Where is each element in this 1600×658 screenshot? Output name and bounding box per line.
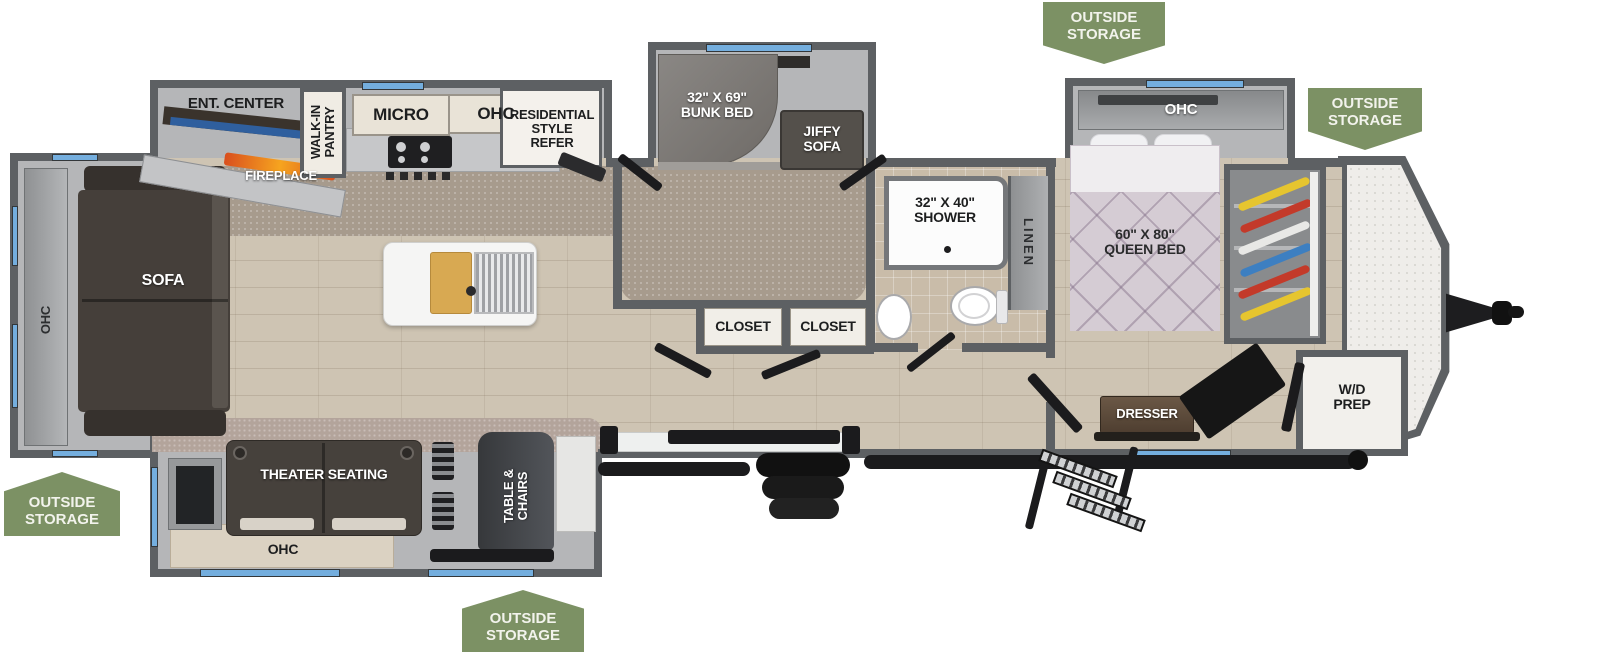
wall	[613, 300, 705, 309]
island-sink	[474, 252, 534, 314]
sofa-seam	[82, 299, 228, 302]
jiffy-sofa-label: JIFFY SOFA	[786, 116, 858, 162]
entry-threshold	[668, 430, 840, 444]
linen-label: LINEN	[1012, 182, 1044, 302]
door-frame	[600, 426, 618, 454]
window	[12, 206, 18, 266]
burner	[396, 142, 406, 152]
cup-holder	[233, 446, 247, 460]
closet-right-label: CLOSET	[791, 310, 865, 344]
outside-storage-badge-bottom: OUTSIDE STORAGE	[462, 590, 584, 652]
shower-label: 32" X 40" SHOWER	[890, 188, 1000, 232]
sofa-armrest	[84, 410, 226, 436]
outside-storage-badge-right: OUTSIDE STORAGE	[1308, 88, 1422, 150]
cup-holder	[400, 446, 414, 460]
shower-drain	[944, 246, 951, 253]
bedroom-ohc-label: OHC	[1150, 100, 1212, 120]
burner	[398, 156, 405, 163]
rail-end-cap	[1348, 450, 1368, 470]
outside-storage-badge-rear: OUTSIDE STORAGE	[4, 472, 120, 536]
wall	[866, 158, 1056, 167]
outside-storage-label: OUTSIDE STORAGE	[486, 610, 560, 645]
window	[151, 467, 158, 547]
frame-rail	[864, 455, 1356, 469]
bunk-bed-edge	[658, 162, 780, 170]
burner	[421, 156, 428, 163]
dinette-chair	[432, 442, 454, 480]
window	[200, 569, 340, 577]
window	[706, 44, 812, 52]
wardrobe-door-edge	[1310, 172, 1318, 336]
walk-in-pantry-label: WALK-IN PANTRY	[294, 92, 352, 172]
table-base	[430, 549, 554, 562]
entry-steps	[762, 476, 844, 499]
window	[1146, 80, 1244, 88]
foot-rest	[240, 518, 314, 530]
rv-floorplan: OUTSIDE STORAGE OUTSIDE STORAGE OUTSIDE …	[0, 0, 1600, 658]
wall	[962, 343, 1055, 352]
hitch-jack	[1508, 306, 1524, 318]
refer-label: RESIDENTIAL STYLE REFER	[502, 92, 602, 166]
theater-divider	[322, 443, 325, 533]
rear-ohc-label: OHC	[26, 274, 66, 366]
stove	[388, 136, 452, 168]
entry-steps	[756, 453, 850, 477]
outside-storage-label: OUTSIDE STORAGE	[1067, 9, 1141, 44]
awning-bar	[598, 462, 750, 476]
micro-label: MICRO	[352, 96, 450, 134]
dresser-label: DRESSER	[1100, 398, 1194, 430]
ent-center-label: ENT. CENTER	[162, 94, 310, 114]
stove-vent	[386, 172, 456, 180]
bench	[556, 436, 596, 532]
bath-sink	[876, 294, 912, 340]
toilet-tank	[996, 290, 1008, 324]
dresser-base	[1094, 432, 1200, 441]
window	[428, 569, 534, 577]
living-tv	[176, 466, 214, 524]
dinette-chair	[432, 492, 454, 530]
window	[52, 154, 98, 161]
window	[12, 324, 18, 408]
fireplace-label: FIREPLACE	[224, 168, 338, 184]
queen-bed-label: 60" X 80" QUEEN BED	[1078, 222, 1212, 262]
trailer-hitch	[1446, 290, 1496, 336]
living-ohc-label: OHC	[252, 542, 314, 558]
faucet	[466, 286, 476, 296]
sofa-label: SOFA	[126, 270, 200, 292]
closet-left-label: CLOSET	[706, 310, 780, 344]
wd-prep-label: W/D PREP	[1306, 368, 1398, 426]
outside-storage-label: OUTSIDE STORAGE	[1328, 95, 1402, 130]
wall	[613, 158, 622, 309]
bunk-bed-label: 32" X 69" BUNK BED	[664, 84, 770, 126]
toilet-seat	[958, 293, 990, 319]
outside-storage-badge-top: OUTSIDE STORAGE	[1043, 2, 1165, 64]
burner	[420, 142, 430, 152]
foot-rest	[332, 518, 406, 530]
table-chairs-label: TABLE & CHAIRS	[476, 446, 556, 546]
entry-steps	[769, 498, 839, 519]
window	[52, 450, 98, 457]
window	[362, 82, 424, 90]
outside-storage-label: OUTSIDE STORAGE	[25, 494, 99, 529]
theater-seating-label: THEATER SEATING	[238, 466, 410, 484]
door-frame	[842, 426, 860, 454]
cutting-board	[430, 252, 472, 314]
